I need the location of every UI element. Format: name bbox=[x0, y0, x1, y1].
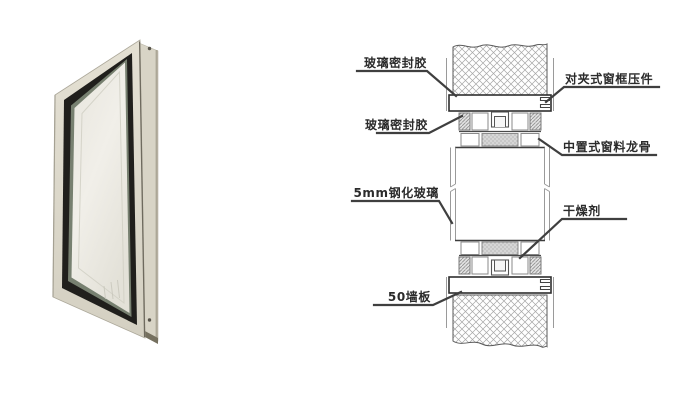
screw-dot-bottom bbox=[148, 318, 151, 321]
spacer-gray-bottom bbox=[482, 242, 518, 255]
sealant-block-bottom-right bbox=[530, 257, 541, 274]
spacer-white-top-left bbox=[461, 134, 479, 147]
keel-chamber-top-right bbox=[512, 113, 528, 130]
label-clamp-press: 对夹式窗框压件 bbox=[565, 71, 653, 86]
spacer-gray-top bbox=[482, 134, 518, 147]
keel-chamber-bottom-left bbox=[472, 257, 488, 274]
keel-chamber-bottom-right bbox=[512, 257, 528, 274]
label-tempered-glass: 5mm钢化玻璃 bbox=[353, 185, 439, 200]
leader-clamp-press bbox=[546, 87, 659, 102]
label-glass-sealant-mid: 玻璃密封胶 bbox=[365, 117, 428, 132]
section-diagram: 玻璃密封胶 对夹式窗框压件 玻璃密封胶 中置式窗料龙骨 5mm钢化玻璃 干燥剂 … bbox=[352, 44, 659, 347]
keel-chamber-top-left bbox=[472, 113, 488, 130]
spacer-white-bottom-left bbox=[461, 242, 479, 255]
frame-rail-top bbox=[449, 95, 551, 111]
wall-panel-bottom bbox=[453, 295, 547, 347]
leader-glass-sealant-top bbox=[357, 71, 456, 96]
label-desiccant: 干燥剂 bbox=[563, 203, 601, 218]
spacer-white-top-right bbox=[521, 134, 539, 147]
screw-dot-top bbox=[148, 47, 151, 50]
keel-channel-top-inner bbox=[495, 117, 506, 128]
glass-pane-right bbox=[545, 148, 550, 241]
wall-panel-top bbox=[453, 44, 547, 95]
figure-svg: 玻璃密封胶 对夹式窗框压件 玻璃密封胶 中置式窗料龙骨 5mm钢化玻璃 干燥剂 … bbox=[0, 0, 683, 419]
label-glass-sealant-top: 玻璃密封胶 bbox=[364, 55, 427, 70]
glass-pane-left bbox=[451, 148, 456, 241]
label-center-keel: 中置式窗料龙骨 bbox=[563, 139, 651, 154]
figure-canvas: 玻璃密封胶 对夹式窗框压件 玻璃密封胶 中置式窗料龙骨 5mm钢化玻璃 干燥剂 … bbox=[0, 0, 683, 419]
keel-channel-bottom-inner bbox=[495, 261, 506, 272]
frame-rail-bottom bbox=[449, 277, 551, 293]
window-photo bbox=[53, 40, 158, 344]
label-wall-panel: 50墙板 bbox=[388, 289, 431, 304]
leader-tempered-glass bbox=[352, 201, 452, 223]
sealant-block-top-right bbox=[530, 113, 541, 130]
sealant-block-bottom-left bbox=[459, 257, 470, 274]
